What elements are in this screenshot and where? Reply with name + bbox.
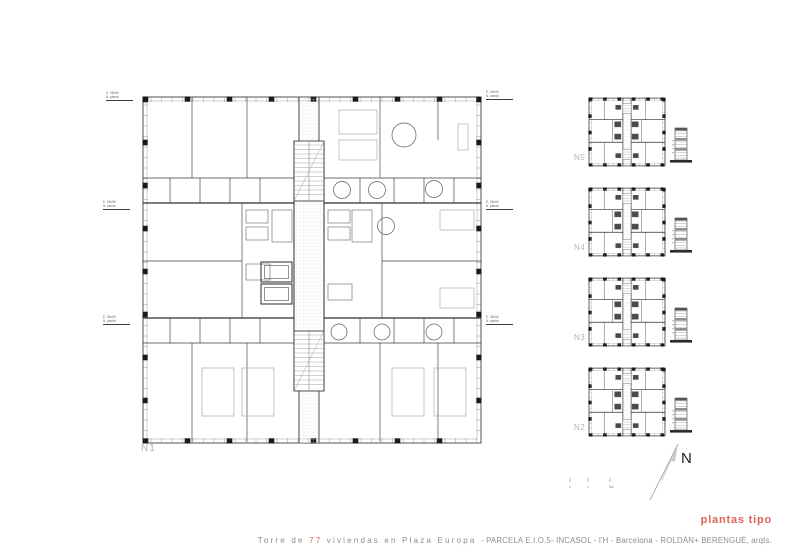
mini-plan-label: N4	[574, 243, 585, 252]
project-title-segment: 77	[309, 536, 322, 545]
mini-plan-label: N3	[574, 333, 585, 342]
level-note: E. 28x06N. planta	[486, 91, 513, 100]
mini-plan-label: N2	[574, 423, 585, 432]
mini-section-drawing	[670, 214, 692, 256]
north-label: N	[681, 450, 692, 467]
level-note-line2: N. planta	[486, 205, 513, 209]
drawing-title-red: plantas tipo	[701, 514, 772, 526]
mini-floor-plan-drawing	[588, 97, 666, 167]
mini-floor-plan-drawing	[588, 367, 666, 437]
level-note-line2: N. planta	[106, 96, 133, 100]
level-note: E. 28x06N. planta	[103, 201, 130, 210]
project-title-segment: viviendas en Plaza Europa	[322, 536, 481, 545]
drawing-sheet: N1 E. 28x06N. plantaE. 28x06N. plantaE. …	[0, 0, 800, 560]
level-note: E. 28x06N. planta	[106, 92, 133, 101]
level-note-rule	[486, 209, 513, 210]
level-note: E. 28x06N. planta	[486, 316, 513, 325]
level-note-line2: N. planta	[103, 320, 130, 324]
scale-tick-label: 1	[587, 485, 589, 489]
mini-floor-plan-drawing	[588, 277, 666, 347]
level-note: E. 28x06N. planta	[103, 316, 130, 325]
level-note-rule	[103, 324, 130, 325]
mini-plan-block: N3	[574, 276, 696, 356]
level-note: E. 28x06N. planta	[486, 201, 513, 210]
mini-section-drawing	[670, 124, 692, 166]
level-note-line2: N. planta	[486, 95, 513, 99]
main-floor-plan-drawing	[142, 96, 482, 444]
mini-plan-block: N4	[574, 186, 696, 266]
mini-plan-label: N5	[574, 153, 585, 162]
scale-tick-label: 5m	[609, 485, 614, 489]
level-note-rule	[486, 324, 513, 325]
scale-tick-label: 0	[569, 485, 571, 489]
scale-bar: 015m	[566, 476, 622, 492]
main-plan-label: N1	[141, 443, 156, 454]
north-arrow-icon: N	[638, 436, 702, 504]
mini-section-drawing	[670, 304, 692, 346]
level-note-line2: N. planta	[103, 205, 130, 209]
level-note-rule	[486, 99, 513, 100]
project-title-segment: Torre de	[258, 536, 309, 545]
project-title-segment: - PARCELA E.I.O.5- INCASOL - l'H - Barce…	[481, 536, 772, 545]
project-title-line: Torre de 77 viviendas en Plaza Europa - …	[258, 536, 772, 545]
mini-section-drawing	[670, 394, 692, 436]
level-note-line2: N. planta	[486, 320, 513, 324]
level-note-rule	[106, 100, 133, 101]
level-note-rule	[103, 209, 130, 210]
mini-plan-block: N5	[574, 96, 696, 176]
mini-floor-plan-drawing	[588, 187, 666, 257]
mini-plan-block: N2	[574, 366, 696, 446]
